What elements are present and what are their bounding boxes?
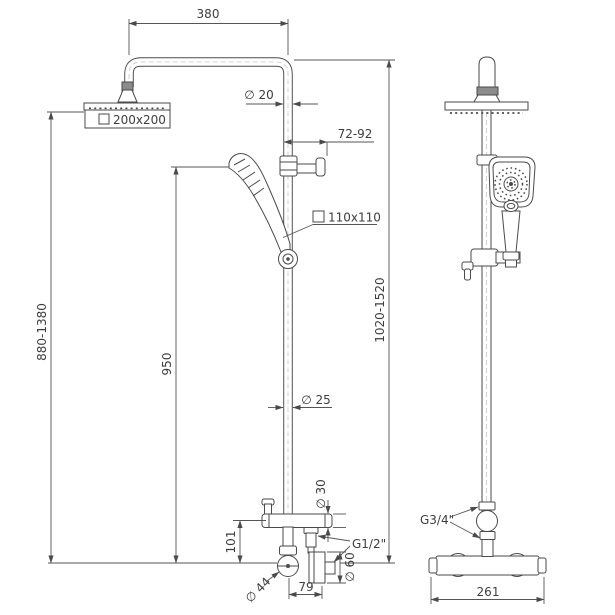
dim-tee-to-valve-label: 101	[224, 531, 238, 554]
front-view	[84, 62, 335, 583]
dim-arm-width-label: 380	[197, 7, 220, 21]
dim-mixer-width-label: 261	[477, 585, 500, 599]
head-size-label: 200x200	[113, 113, 166, 127]
tee-body	[262, 514, 332, 528]
dim-tee-to-valve: 101	[224, 521, 266, 564]
dim-handle-dia: ∅ 44	[243, 572, 279, 605]
mode-button	[504, 201, 518, 212]
hand-shower-size-label: 110x110	[328, 211, 381, 225]
dim-arm-pipe-dia: ∅ 20	[244, 88, 318, 104]
dim-column: 950	[160, 167, 229, 563]
wall-bracket	[280, 156, 325, 176]
inlet-connector	[477, 502, 498, 540]
dia-tee-label: ∅ 30	[314, 479, 328, 509]
shower-column-drawing: 380 ∅ 20 200x200 880-1380 950	[0, 0, 615, 615]
technical-drawing-canvas: 380 ∅ 20 200x200 880-1380 950	[0, 0, 615, 615]
inlet-fitting	[325, 562, 335, 574]
mixer-body	[436, 556, 539, 575]
swivel-nut	[477, 511, 498, 532]
hand-shower-front	[462, 157, 535, 280]
dim-overall-height-label: 1020-1520	[373, 277, 387, 342]
riser-and-arm-tube	[129, 62, 288, 527]
dim-outlet-offset-label: 79	[298, 580, 313, 594]
dia-column-pipe-label: ∅ 25	[301, 393, 331, 407]
dim-height-adjustable-label: 880-1380	[35, 303, 49, 361]
hand-shower-handle	[502, 211, 520, 252]
dim-tee-dia: ∅ 30	[314, 479, 346, 542]
side-view	[429, 57, 546, 577]
valve-assembly	[262, 499, 335, 583]
thread-hose-outlet-label: G1/2"	[352, 537, 386, 551]
head-plate-edge	[445, 102, 528, 110]
head-cone	[118, 90, 137, 102]
holder-clamp	[471, 249, 498, 266]
hose-outlet	[306, 533, 316, 547]
dim-bracket-reach-label: 72-92	[338, 127, 373, 141]
dia-escutcheon-label: ∅ 60	[343, 552, 357, 582]
label-hand-shower-size: 110x110	[283, 211, 381, 238]
wall-escutcheon	[309, 552, 325, 583]
dim-bracket-reach: 72-92	[284, 127, 374, 156]
label-inlet-thread: G3/4"	[420, 507, 480, 538]
dim-height-adjustable: 880-1380	[35, 112, 84, 563]
dim-column-label: 950	[160, 353, 174, 376]
hose-connector	[503, 252, 519, 260]
square-symbol-icon	[313, 211, 324, 222]
arm-end-and-head	[445, 57, 528, 113]
dim-arm-width: 380	[129, 7, 288, 55]
dia-arm-pipe-label: ∅ 20	[244, 88, 274, 102]
thread-inlet-label: G3/4"	[420, 513, 454, 527]
dim-mixer-width: 261	[431, 577, 544, 604]
thermostatic-mixer	[429, 540, 546, 577]
dim-column-pipe-dia: ∅ 25	[268, 393, 332, 408]
